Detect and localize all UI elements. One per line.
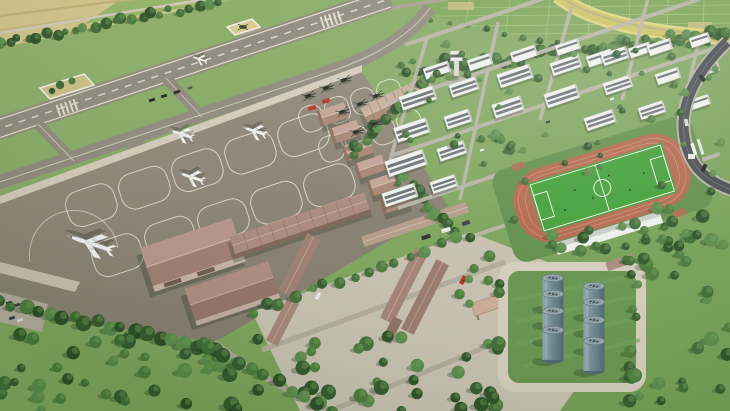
tree-highlight [685, 230, 689, 234]
tree-highlight [637, 281, 641, 285]
tree-highlight [645, 234, 649, 238]
tree-highlight [26, 301, 34, 309]
tree-highlight [126, 335, 134, 343]
tank-vent [593, 285, 596, 288]
tree-highlight [416, 389, 422, 395]
tree-highlight [359, 390, 366, 397]
tree-highlight [588, 226, 593, 231]
tree-highlight [153, 386, 159, 392]
tree-highlight [683, 142, 686, 145]
tree-highlight [97, 316, 103, 322]
tree-highlight [486, 26, 489, 29]
tree-highlight [495, 54, 501, 60]
tree-highlight [72, 347, 79, 354]
tree-highlight [685, 257, 691, 263]
tree-highlight [458, 290, 463, 295]
tree-highlight [170, 334, 177, 341]
tree-highlight [630, 271, 634, 275]
tree-highlight [671, 217, 677, 223]
tree-highlight [400, 175, 403, 178]
tree-highlight [144, 353, 148, 357]
tree-highlight [524, 178, 528, 182]
tree-highlight [629, 257, 634, 262]
tree-highlight [681, 378, 685, 382]
tree-highlight [674, 272, 678, 276]
tree-highlight [573, 51, 576, 54]
tank-vent [593, 340, 596, 343]
tree-highlight [40, 406, 45, 411]
tree-highlight [629, 346, 635, 352]
tree-highlight [580, 246, 586, 252]
tree-highlight [498, 105, 501, 108]
tree-highlight [469, 233, 474, 238]
tree-highlight [365, 338, 372, 345]
tree-highlight [300, 352, 306, 358]
tree-highlight [257, 385, 263, 391]
tree-highlight [513, 217, 517, 221]
tree-highlight [184, 349, 190, 355]
tree-highlight [633, 369, 640, 376]
tree-highlight [564, 160, 567, 163]
tree-highlight [416, 360, 423, 367]
tree-highlight [509, 89, 512, 92]
tree-highlight [447, 219, 452, 224]
tree-highlight [473, 265, 478, 270]
tree-highlight [643, 254, 649, 260]
tree-highlight [667, 237, 672, 242]
tree-highlight [467, 72, 471, 76]
tree-highlight [124, 397, 129, 402]
tree-highlight [493, 404, 499, 410]
tree-highlight [708, 76, 711, 79]
tree-highlight [400, 62, 404, 66]
tree-highlight [183, 364, 191, 372]
tree-highlight [410, 254, 414, 258]
tree-highlight [314, 363, 319, 368]
tree-highlight [671, 53, 675, 57]
tree-highlight [236, 404, 241, 409]
tree-highlight [492, 392, 498, 398]
tree-highlight [251, 364, 257, 370]
tree-highlight [9, 303, 14, 308]
tree-highlight [682, 384, 687, 389]
tree-highlight [310, 348, 315, 353]
tree-highlight [481, 136, 485, 140]
tree-highlight [499, 280, 504, 285]
tree-highlight [423, 247, 429, 253]
tree-highlight [634, 219, 640, 225]
tree-highlight [357, 144, 362, 149]
tree-highlight [651, 116, 655, 120]
tree-highlight [487, 277, 492, 282]
tree-highlight [387, 332, 393, 338]
tree-highlight [159, 12, 163, 16]
tree-highlight [587, 143, 591, 147]
tree-highlight [112, 357, 117, 362]
tree-highlight [427, 204, 432, 209]
tank-vent [552, 293, 555, 296]
tree-highlight [381, 262, 387, 268]
tree-highlight [661, 182, 665, 186]
tree-highlight [719, 385, 724, 390]
tree-highlight [461, 51, 464, 54]
tree [49, 88, 55, 94]
tree-highlight [81, 24, 86, 29]
tree-highlight [436, 70, 440, 74]
tree-highlight [60, 394, 65, 399]
tree-highlight [715, 66, 718, 69]
tree-highlight [588, 168, 592, 172]
tree-highlight [303, 391, 309, 397]
tree-highlight [208, 343, 214, 349]
tree-highlight [551, 231, 557, 237]
tank-vent [593, 301, 596, 304]
tree-highlight [669, 30, 674, 35]
tree [56, 81, 64, 89]
tree-highlight [367, 396, 373, 402]
tree-highlight [455, 232, 461, 238]
tree-highlight [358, 344, 363, 349]
tree-highlight [616, 51, 620, 55]
tree-highlight [465, 353, 470, 358]
tree-highlight [641, 71, 644, 74]
tree-highlight [710, 234, 717, 241]
tree-highlight [673, 82, 677, 86]
tree-highlight [413, 376, 418, 381]
tree-highlight [314, 338, 320, 344]
tree-highlight [498, 288, 504, 294]
tree-highlight [557, 40, 560, 43]
tree-highlight [278, 375, 285, 382]
tree-highlight [658, 378, 664, 384]
tree-highlight [339, 278, 345, 284]
tree-highlight [560, 243, 565, 248]
tree-highlight [468, 276, 472, 280]
tank-vent [552, 310, 555, 313]
tree-highlight [594, 46, 596, 48]
tree-highlight [119, 14, 125, 20]
tree-highlight [146, 327, 154, 335]
airport-aerial-render: Aerial 3D rendering of an airport comple… [0, 0, 730, 411]
tree-highlight [119, 323, 124, 328]
tree-highlight [405, 131, 409, 135]
tree-highlight [444, 54, 450, 60]
tree-highlight [185, 399, 191, 405]
tree-highlight [397, 181, 400, 184]
tree-highlight [488, 251, 494, 257]
tree-highlight [84, 379, 88, 383]
tree [68, 77, 75, 84]
tree-highlight [321, 280, 326, 285]
tree-highlight [595, 242, 600, 247]
tree-highlight [662, 235, 667, 240]
tree-highlight [410, 138, 413, 141]
tree-highlight [551, 241, 556, 246]
tree-highlight [291, 387, 297, 393]
tree-highlight [651, 268, 658, 275]
tree-highlight [599, 164, 602, 167]
tree-highlight [261, 370, 267, 376]
tree-highlight [604, 244, 610, 250]
tree-highlight [457, 134, 460, 137]
tree-highlight [183, 338, 191, 346]
tree-highlight [621, 223, 625, 227]
tank-vent [552, 329, 555, 332]
tree-highlight [710, 333, 717, 340]
tree-highlight [522, 35, 525, 38]
tree-highlight [105, 19, 111, 25]
tree-highlight [295, 292, 301, 298]
tree-highlight [14, 379, 18, 383]
tree-highlight [497, 338, 504, 345]
tree-highlight [513, 62, 516, 65]
tree-highlight [123, 350, 128, 355]
tree-highlight [620, 105, 623, 108]
tree-highlight [301, 362, 308, 369]
tree-highlight [15, 35, 19, 39]
tree-highlight [660, 397, 664, 401]
tree-highlight [720, 139, 724, 143]
tree-highlight [238, 358, 245, 365]
tree-highlight [19, 329, 26, 336]
tree-highlight [428, 98, 431, 101]
tree-highlight [712, 171, 715, 174]
tree-highlight [469, 300, 473, 304]
tree-highlight [625, 38, 630, 43]
tree-highlight [622, 108, 625, 111]
tree-highlight [46, 28, 52, 34]
tree-highlight [643, 227, 647, 231]
tree-highlight [253, 310, 258, 315]
tree-highlight [696, 231, 701, 236]
tan-plot [448, 2, 474, 10]
tree-highlight [460, 403, 467, 410]
tree-highlight [430, 19, 432, 21]
tree-highlight [656, 203, 662, 209]
tree-highlight [680, 109, 684, 113]
tree-highlight [475, 383, 481, 389]
tree-highlight [56, 363, 61, 368]
tree-highlight [353, 152, 357, 156]
tree-highlight [701, 211, 708, 218]
tree-highlight [143, 367, 149, 373]
tree-highlight [706, 287, 712, 293]
tree-highlight [37, 392, 43, 398]
tree-highlight [509, 144, 513, 148]
tree-highlight [638, 392, 642, 396]
tree-highlight [539, 38, 542, 41]
tree-highlight [65, 29, 68, 32]
tree-highlight [450, 21, 452, 23]
tree-highlight [684, 89, 688, 93]
tree-highlight [454, 393, 459, 398]
tree-highlight [441, 239, 446, 244]
tank-vent [593, 319, 596, 322]
tree-highlight [310, 382, 317, 389]
tree-highlight [602, 43, 606, 47]
tree-highlight [131, 15, 136, 20]
tree-highlight [67, 374, 73, 380]
tree-highlight [400, 332, 406, 338]
tree-highlight [635, 313, 639, 317]
tree-highlight [522, 148, 525, 151]
tree-highlight [382, 358, 387, 363]
tree-highlight [266, 299, 272, 305]
tree-highlight [635, 48, 638, 51]
tank-vent [552, 277, 555, 280]
tree-highlight [149, 8, 155, 14]
tree-highlight [60, 312, 67, 319]
tree-highlight [37, 307, 43, 313]
tree-highlight [668, 205, 673, 210]
tree-highlight [20, 364, 24, 368]
tree-highlight [545, 132, 548, 135]
tree-highlight [537, 75, 541, 79]
tree-highlight [405, 68, 410, 73]
tree-highlight [710, 188, 714, 192]
tree-highlight [597, 141, 600, 144]
tree-highlight [504, 33, 507, 36]
tree-highlight [380, 382, 387, 389]
tree-highlight [697, 343, 703, 349]
tree-highlight [609, 71, 612, 74]
tree-highlight [188, 6, 192, 10]
tree-highlight [457, 367, 464, 374]
tree-highlight [725, 28, 730, 33]
tree-highlight [94, 337, 100, 343]
tree-highlight [446, 41, 450, 45]
tree-highlight [221, 349, 228, 356]
tree-highlight [105, 390, 110, 395]
gate-booth [688, 154, 695, 159]
tree-highlight [355, 274, 359, 278]
tree-highlight [397, 102, 400, 105]
tree-highlight [119, 335, 125, 341]
tree-highlight [316, 398, 323, 405]
tree-highlight [483, 161, 486, 164]
tree-highlight [453, 141, 457, 145]
tree-highlight [613, 45, 616, 48]
tree-highlight [276, 300, 282, 306]
tree-highlight [479, 78, 482, 81]
tree-highlight [600, 153, 603, 156]
tree-highlight [74, 312, 80, 318]
tree-highlight [431, 77, 435, 81]
tree-highlight [38, 380, 45, 387]
tree-highlight [500, 136, 504, 140]
tree-highlight [257, 335, 262, 340]
tree-highlight [412, 59, 415, 62]
tree-highlight [586, 67, 590, 71]
tree-highlight [32, 333, 38, 339]
tree-highlight [625, 243, 629, 247]
tree-highlight [678, 241, 683, 246]
tree-highlight [632, 306, 636, 310]
tree-highlight [417, 186, 423, 192]
tree-highlight [207, 365, 212, 370]
tree-highlight [722, 240, 727, 245]
tree-highlight [495, 130, 500, 135]
tree-highlight [167, 6, 170, 9]
tree-highlight [393, 259, 398, 264]
tree-highlight [327, 386, 335, 394]
tree-highlight [628, 395, 635, 402]
tree-highlight [385, 115, 391, 121]
tree-highlight [628, 362, 634, 368]
